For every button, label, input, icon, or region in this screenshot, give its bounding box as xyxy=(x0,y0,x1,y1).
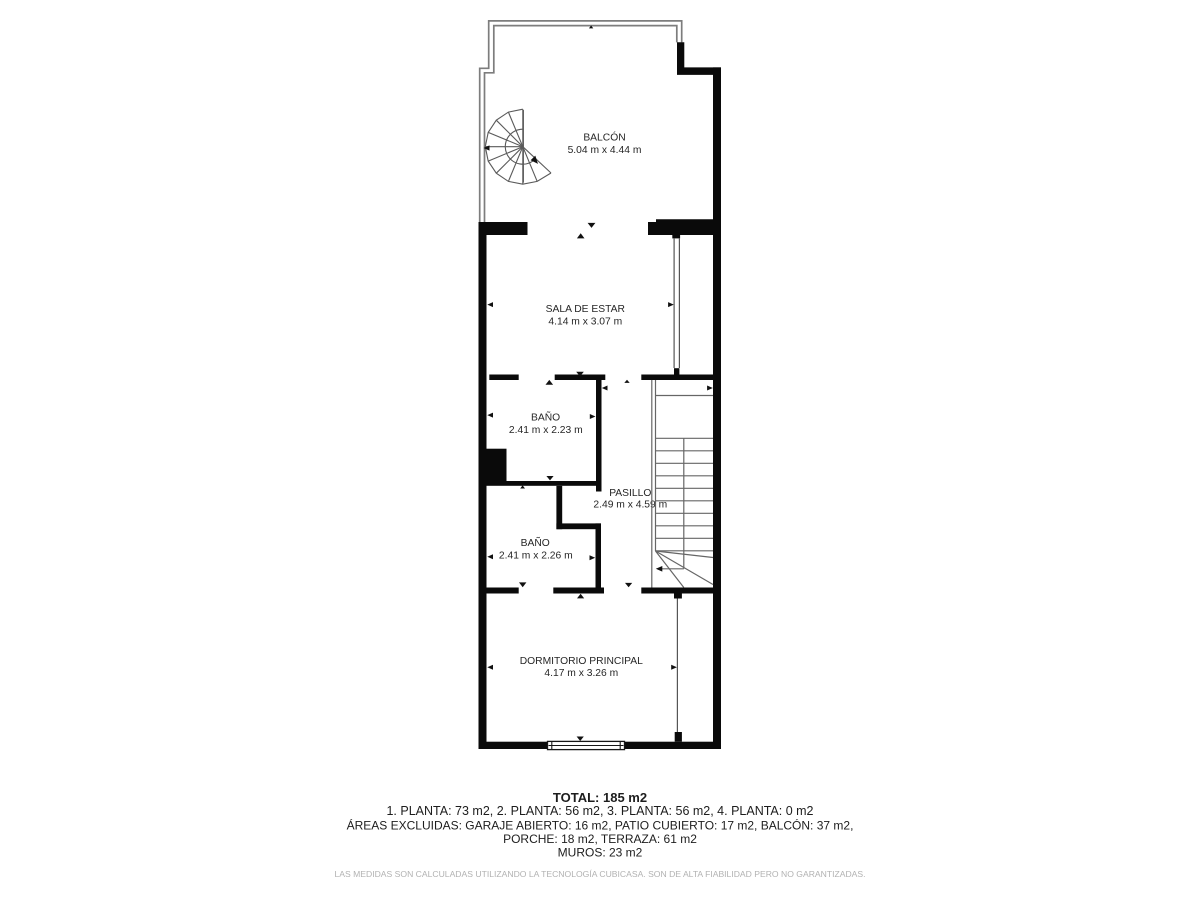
svg-text:ÁREAS EXCLUIDAS: GARAJE ABIERT: ÁREAS EXCLUIDAS: GARAJE ABIERTO: 16 m2, … xyxy=(347,817,854,832)
svg-text:4.17 m x 3.26 m: 4.17 m x 3.26 m xyxy=(544,668,618,679)
svg-text:PORCHE: 18 m2, TERRAZA: 61 m2: PORCHE: 18 m2, TERRAZA: 61 m2 xyxy=(503,832,697,846)
svg-text:LAS MEDIDAS SON CALCULADAS UTI: LAS MEDIDAS SON CALCULADAS UTILIZANDO LA… xyxy=(334,869,865,879)
svg-text:4.14 m x 3.07 m: 4.14 m x 3.07 m xyxy=(548,316,622,327)
svg-text:BAÑO: BAÑO xyxy=(521,536,550,549)
svg-text:SALA DE ESTAR: SALA DE ESTAR xyxy=(546,304,625,315)
svg-text:PASILLO: PASILLO xyxy=(609,488,651,499)
svg-text:5.04 m x 4.44 m: 5.04 m x 4.44 m xyxy=(568,145,642,156)
svg-text:BAÑO: BAÑO xyxy=(531,411,560,424)
svg-text:MUROS: 23 m2: MUROS: 23 m2 xyxy=(558,846,643,860)
svg-text:BALCÓN: BALCÓN xyxy=(583,130,625,143)
svg-text:TOTAL: 185 m2: TOTAL: 185 m2 xyxy=(553,790,647,805)
svg-text:2.41 m x 2.26 m: 2.41 m x 2.26 m xyxy=(499,551,573,562)
svg-text:DORMITORIO PRINCIPAL: DORMITORIO PRINCIPAL xyxy=(520,656,643,667)
svg-text:2.41 m x 2.23 m: 2.41 m x 2.23 m xyxy=(509,425,583,436)
svg-text:1. PLANTA: 73 m2, 2. PLANTA: 5: 1. PLANTA: 73 m2, 2. PLANTA: 56 m2, 3. P… xyxy=(386,804,813,818)
